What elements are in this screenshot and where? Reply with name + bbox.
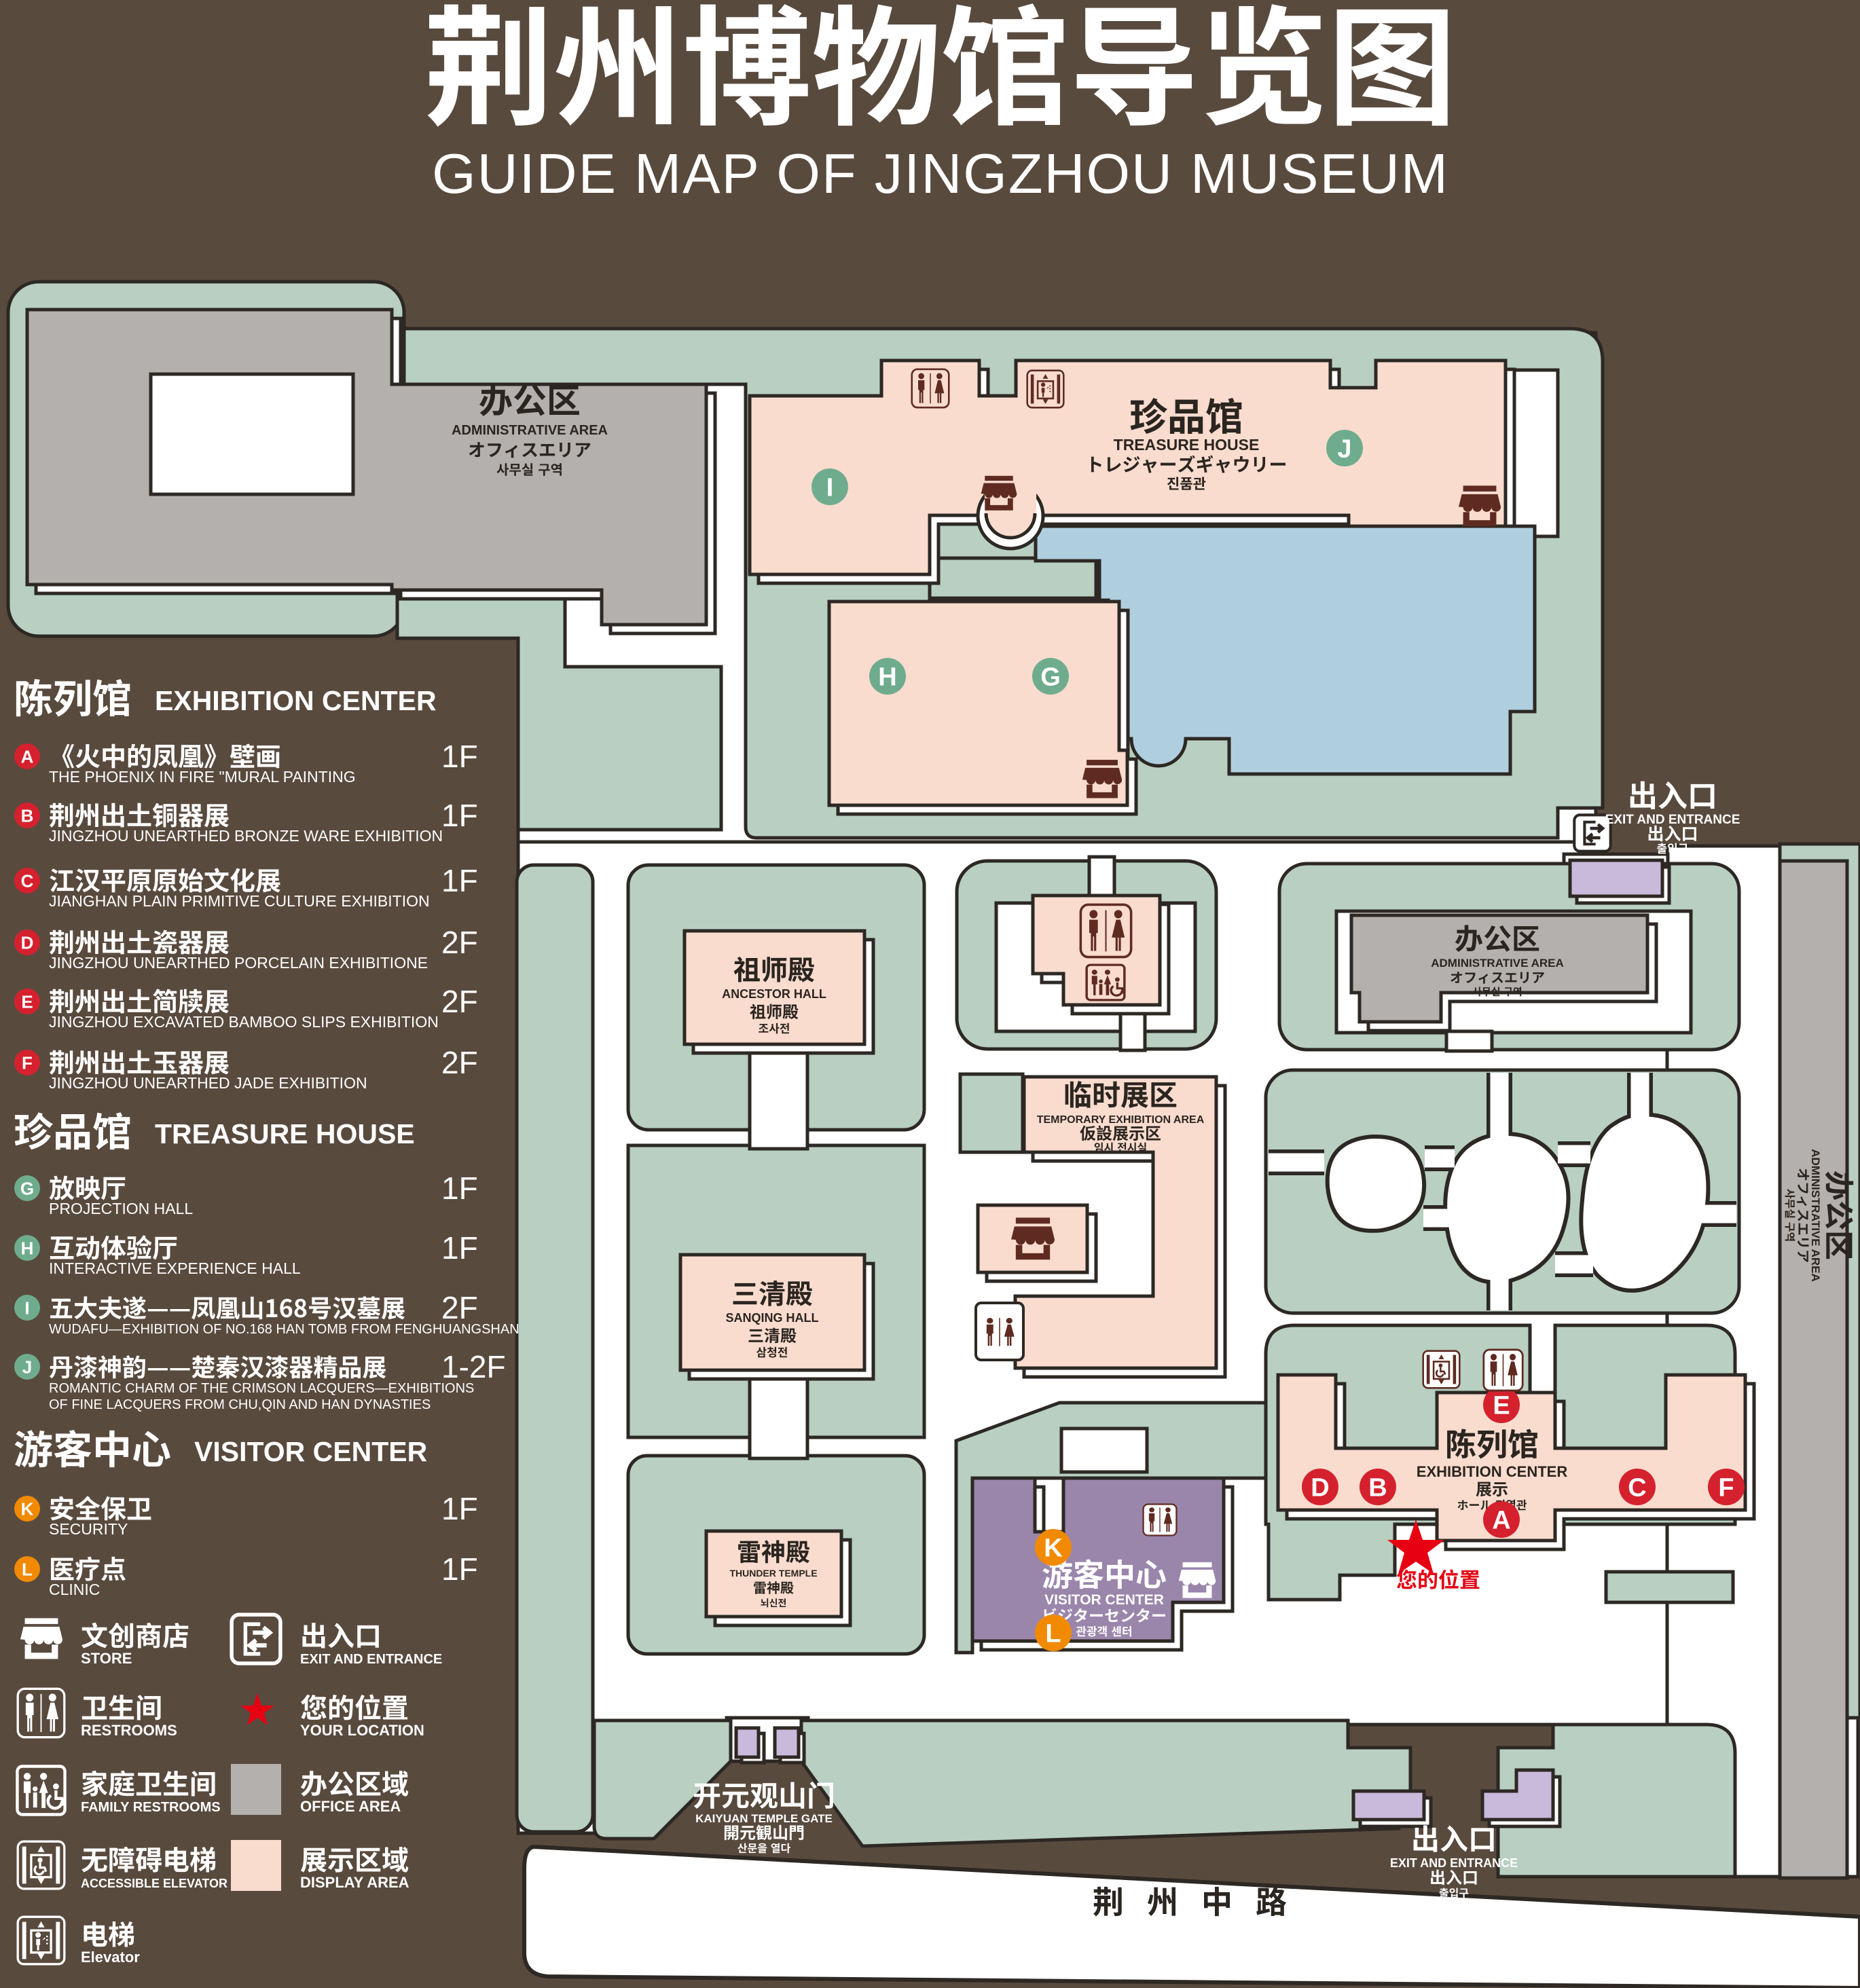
svg-text:JINGZHOU EXCAVATED BAMBOO SLIP: JINGZHOU EXCAVATED BAMBOO SLIPS EXHIBITI… [49,1013,439,1031]
svg-text:1F: 1F [441,1230,478,1266]
svg-text:1F: 1F [441,798,478,833]
svg-text:VISITOR CENTER: VISITOR CENTER [194,1436,427,1467]
svg-text:FAMILY RESTROOMS: FAMILY RESTROOMS [81,1800,221,1815]
svg-text:ROMANTIC CHARM OF THE CRIMSON: ROMANTIC CHARM OF THE CRIMSON LACQUERS—E… [49,1381,474,1396]
svg-text:J: J [22,1357,32,1377]
svg-text:K: K [1044,1534,1063,1563]
svg-text:EXIT AND ENTRANCE: EXIT AND ENTRANCE [300,1652,442,1667]
svg-text:1F: 1F [441,739,478,774]
svg-text:KAIYUAN TEMPLE GATE: KAIYUAN TEMPLE GATE [695,1812,833,1825]
svg-text:1F: 1F [441,1171,478,1206]
svg-text:TREASURE HOUSE: TREASURE HOUSE [155,1118,415,1149]
svg-text:Elevator: Elevator [81,1949,140,1966]
svg-text:A: A [1492,1507,1510,1535]
svg-text:C: C [1628,1474,1646,1503]
svg-text:TREASURE HOUSE: TREASURE HOUSE [1114,436,1260,454]
svg-text:2F: 2F [441,1290,478,1325]
svg-text:B: B [1368,1474,1387,1503]
svg-text:ADMINISTRATIVE AREA: ADMINISTRATIVE AREA [1431,957,1564,970]
svg-text:G: G [1040,663,1061,692]
svg-text:B: B [21,805,34,826]
svg-text:EXHIBITION CENTER: EXHIBITION CENTER [1417,1463,1568,1480]
svg-text:H: H [21,1238,34,1258]
svg-text:OFFICE AREA: OFFICE AREA [300,1798,401,1815]
svg-text:ACCESSIBLE ELEVATOR: ACCESSIBLE ELEVATOR [81,1877,227,1890]
svg-text:VISITOR CENTER: VISITOR CENTER [1044,1592,1164,1608]
svg-text:ANCESTOR HALL: ANCESTOR HALL [722,987,826,1001]
svg-text:I: I [826,474,834,502]
svg-text:EXIT AND ENTRANCE: EXIT AND ENTRANCE [1390,1856,1518,1870]
svg-text:TEMPORARY EXHIBITION AREA: TEMPORARY EXHIBITION AREA [1037,1114,1205,1126]
svg-text:THE PHOENIX IN FIRE "MURAL PAI: THE PHOENIX IN FIRE "MURAL PAINTING [49,768,356,786]
svg-text:YOUR LOCATION: YOUR LOCATION [300,1722,424,1739]
svg-text:SANQING HALL: SANQING HALL [726,1311,819,1325]
svg-text:THUNDER TEMPLE: THUNDER TEMPLE [729,1568,817,1579]
svg-text:ADMINISTRATIVE AREA: ADMINISTRATIVE AREA [452,423,608,438]
svg-text:STORE: STORE [81,1650,132,1667]
svg-text:D: D [21,932,34,953]
svg-text:OF FINE LACQUERS FROM CHU,QIN: OF FINE LACQUERS FROM CHU,QIN AND HAN DY… [49,1397,431,1412]
svg-text:E: E [21,991,33,1012]
svg-text:J: J [1337,435,1351,464]
svg-text:2F: 2F [441,1045,478,1080]
svg-text:H: H [878,663,896,692]
svg-text:F: F [1718,1474,1734,1503]
svg-text:L: L [1045,1620,1061,1649]
svg-text:K: K [21,1498,34,1519]
svg-text:1-2F: 1-2F [441,1349,506,1384]
svg-text:2F: 2F [441,984,478,1019]
svg-text:E: E [1493,1392,1510,1420]
svg-text:ADMINISTRATIVE AREA: ADMINISTRATIVE AREA [1809,1149,1822,1282]
svg-text:JINGZHOU UNEARTHED JADE EXHIBI: JINGZHOU UNEARTHED JADE EXHIBITION [49,1074,367,1092]
svg-text:2F: 2F [441,925,478,960]
svg-text:D: D [1311,1474,1329,1503]
svg-text:L: L [22,1559,33,1579]
svg-text:1F: 1F [441,1551,478,1587]
svg-text:A: A [21,746,34,767]
svg-text:CLINIC: CLINIC [49,1581,100,1598]
svg-text:SECURITY: SECURITY [49,1520,128,1538]
svg-text:GUIDE MAP OF JINGZHOU MUSEUM: GUIDE MAP OF JINGZHOU MUSEUM [432,142,1449,205]
svg-text:EXIT AND ENTRANCE: EXIT AND ENTRANCE [1605,813,1740,827]
svg-text:JIANGHAN PLAIN PRIMITIVE CULTU: JIANGHAN PLAIN PRIMITIVE CULTURE EXHIBIT… [49,892,430,910]
svg-text:JINGZHOU UNEARTHED PORCELAIN E: JINGZHOU UNEARTHED PORCELAIN EXHIBITIONE [49,954,428,972]
svg-text:I: I [24,1297,29,1318]
svg-text:F: F [22,1052,33,1073]
svg-text:DISPLAY AREA: DISPLAY AREA [300,1874,409,1891]
svg-text:1F: 1F [441,1491,478,1526]
svg-text:1F: 1F [441,863,478,898]
svg-text:G: G [20,1178,34,1198]
svg-text:C: C [21,870,34,891]
svg-text:JINGZHOU UNEARTHED BRONZE WARE: JINGZHOU UNEARTHED BRONZE WARE EXHIBITIO… [49,827,443,845]
svg-text:EXHIBITION CENTER: EXHIBITION CENTER [155,685,437,716]
svg-text:INTERACTIVE EXPERIENCE HALL: INTERACTIVE EXPERIENCE HALL [49,1259,301,1277]
svg-text:RESTROOMS: RESTROOMS [81,1722,177,1739]
svg-text:PROJECTION HALL: PROJECTION HALL [49,1200,193,1217]
